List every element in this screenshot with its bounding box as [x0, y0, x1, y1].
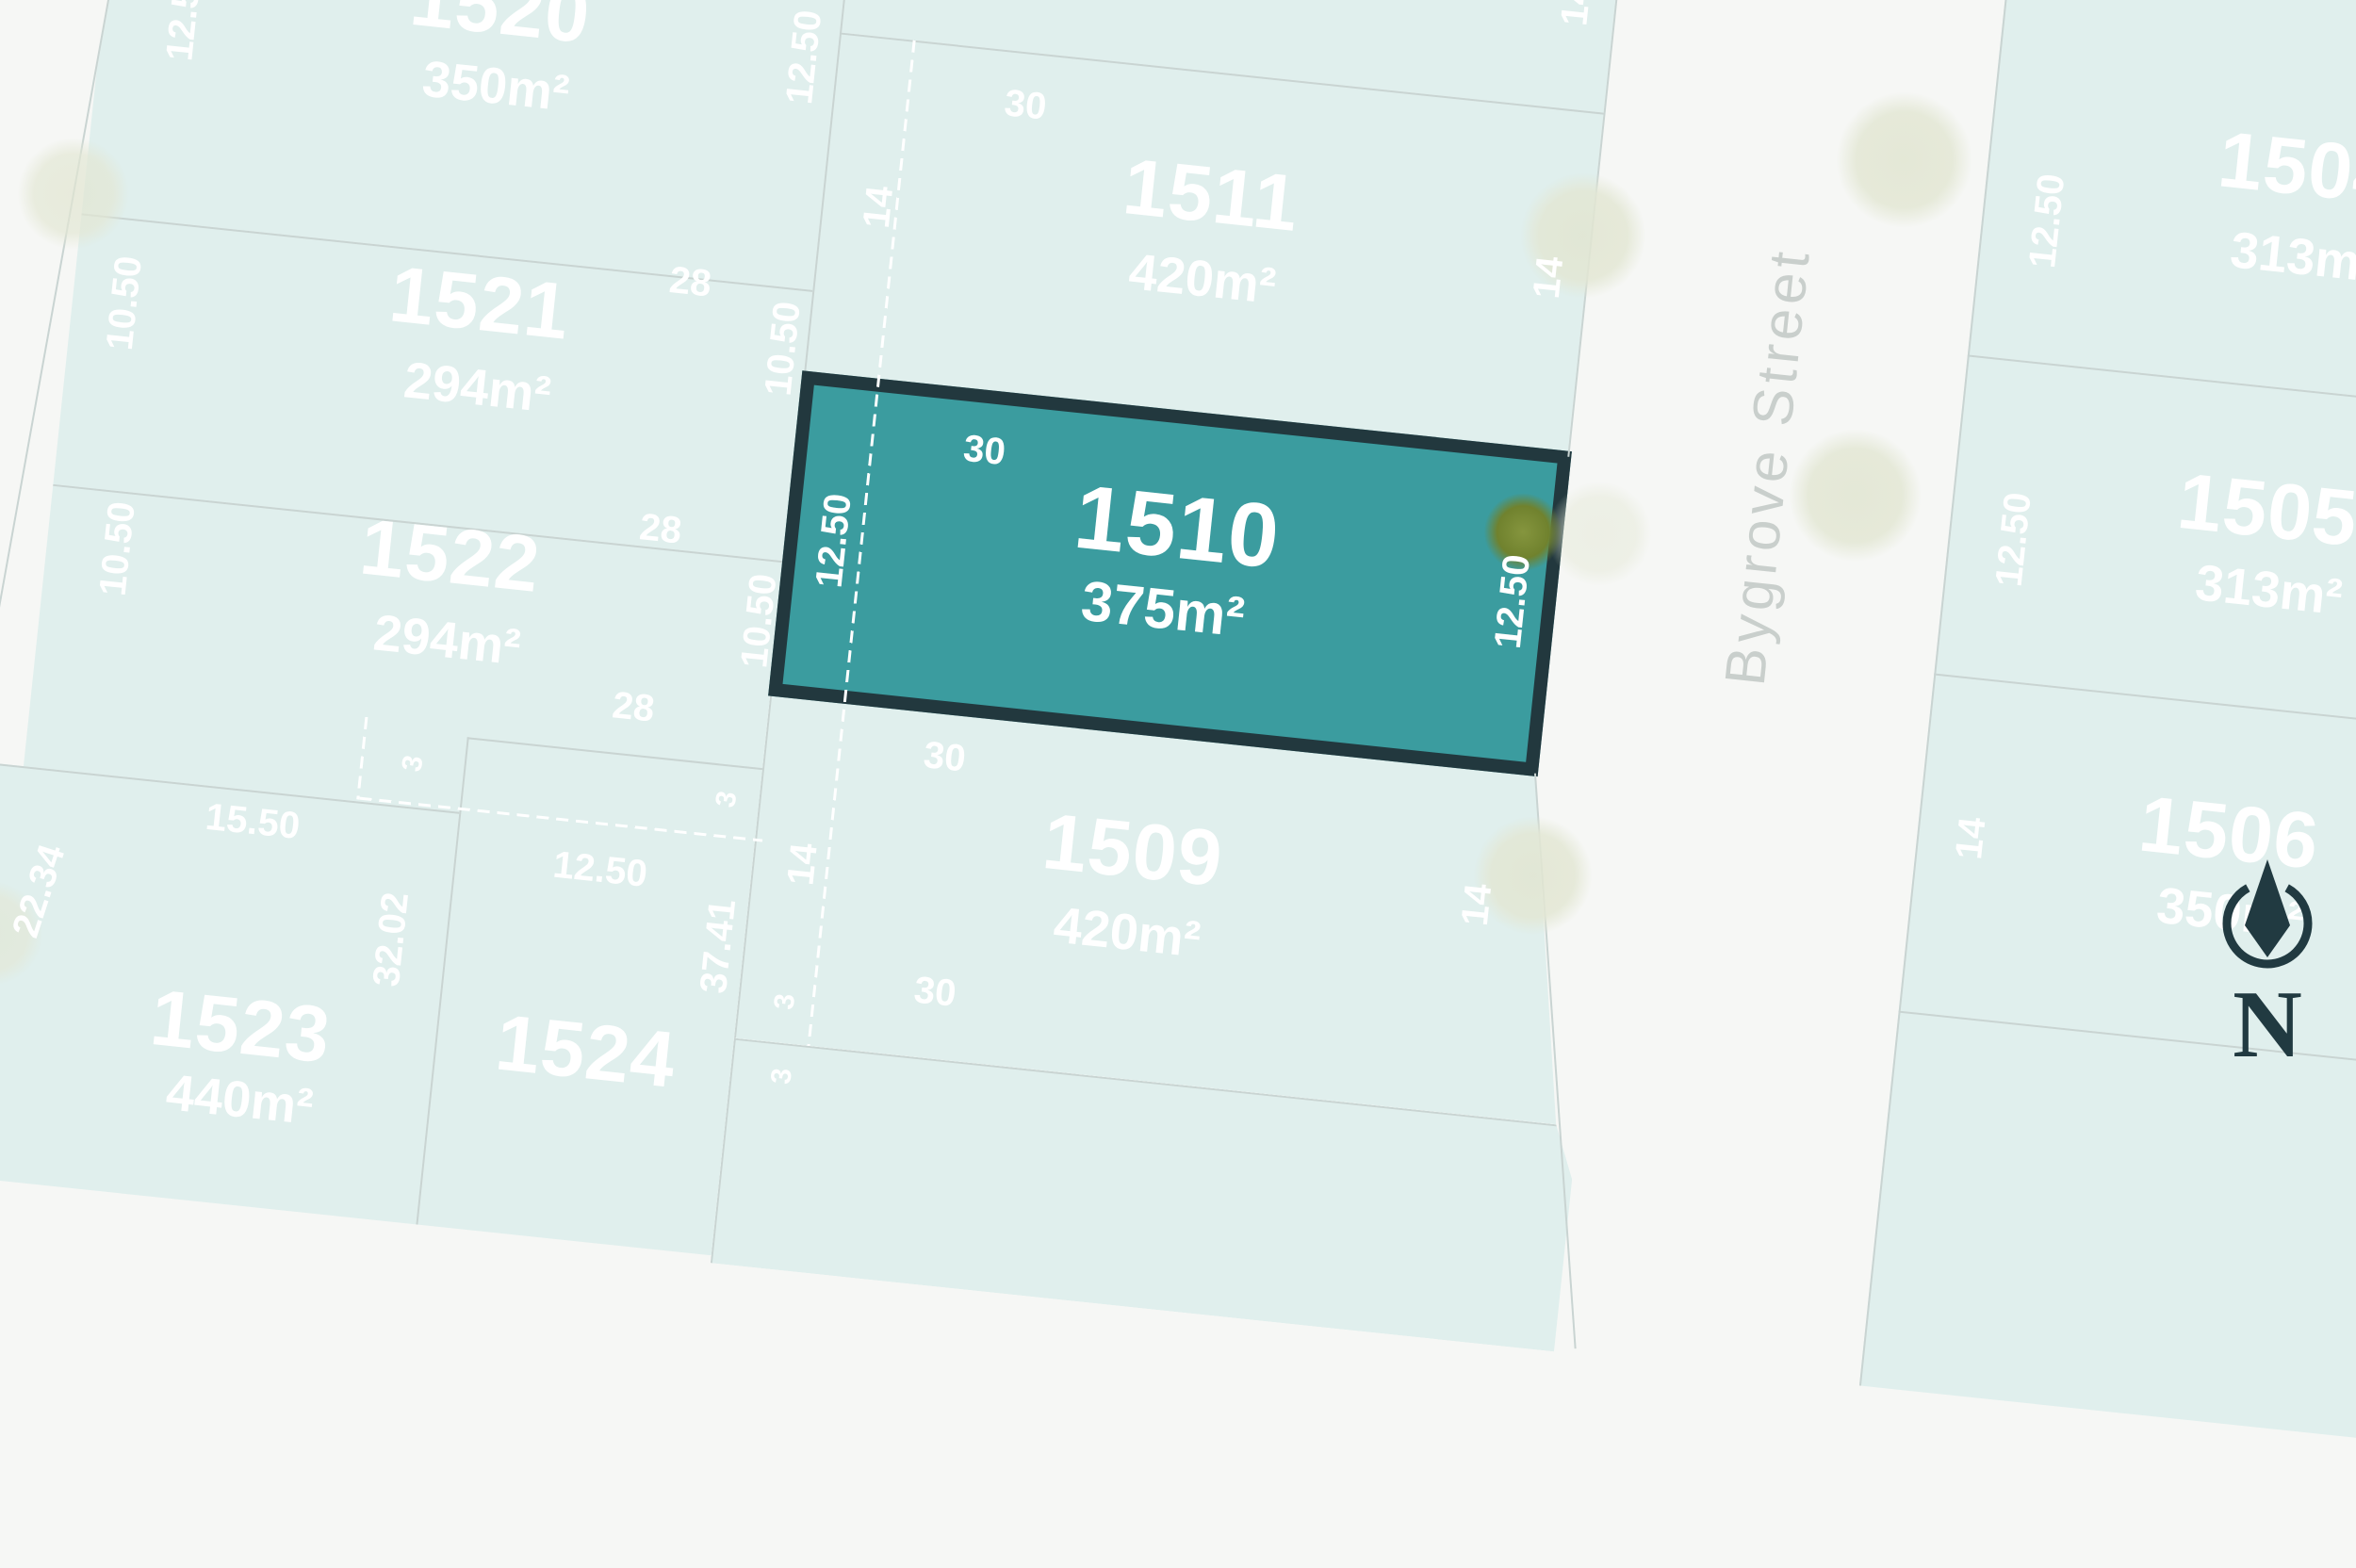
north-label: N: [2201, 977, 2333, 1073]
lot-1505-number: 1505: [2174, 461, 2356, 558]
compass-needle-icon: [2245, 859, 2290, 957]
dimension-label: 14: [1528, 254, 1569, 300]
north-indicator: N: [2201, 846, 2333, 1073]
setback-dimension-label: 3: [770, 992, 800, 1011]
dimension-label: 28: [611, 686, 656, 727]
lot-1504-number: 1504: [2215, 119, 2356, 216]
tree-icon: [1803, 59, 2004, 261]
dimension-label: 28: [667, 261, 712, 302]
dimension-label: 14: [781, 841, 823, 887]
tree-icon: [0, 110, 156, 276]
dimension-label: 10.50: [94, 499, 141, 597]
lot-1522-number: 1522: [357, 507, 545, 604]
dimension-label-1510-right: 12.50: [1489, 552, 1536, 650]
subdivision-plan: Bygrove Street 1520 350m² 1521 294m² 152…: [0, 0, 2356, 1232]
dimension-label: 10.50: [735, 572, 782, 670]
dimension-label: 30: [922, 736, 967, 777]
dimension-label: 12.50: [551, 846, 649, 893]
dimension-label: 12.50: [160, 0, 207, 62]
dimension-label-1510-left: 12.50: [810, 492, 858, 590]
lot-1523-number: 1523: [147, 977, 335, 1074]
dimension-label: 12.50: [780, 8, 827, 106]
dimension-label: 10.50: [760, 300, 807, 398]
dimension-label: 12.50: [2023, 172, 2070, 270]
dimension-label: 14: [1555, 0, 1596, 27]
dimension-label: 12.50: [1990, 491, 2037, 589]
lot-1521-number: 1521: [386, 253, 574, 351]
dimension-label: 37.41: [695, 897, 742, 995]
dimension-label: 14: [858, 185, 899, 230]
dimension-label: 14: [1456, 882, 1497, 927]
tree-icon: [1445, 788, 1621, 964]
lot-1511-number: 1511: [1120, 146, 1302, 243]
dimension-label: 30: [1003, 84, 1048, 125]
setback-dimension-label: 3: [767, 1067, 797, 1086]
dimension-label: 32.02: [368, 890, 415, 988]
dimension-label: 14: [1950, 815, 1991, 860]
lot-1510-number: 1510: [1071, 472, 1284, 583]
lot-1509-number: 1509: [1039, 801, 1227, 898]
lot-1524[interactable]: [416, 737, 762, 1255]
dimension-label: 10.50: [101, 254, 148, 352]
compass-icon: [2201, 846, 2333, 988]
dimension-label: 15.50: [204, 798, 302, 845]
dimension-label: 30: [912, 971, 957, 1012]
tree-icon: [1490, 142, 1677, 329]
dimension-label: 28: [638, 508, 683, 549]
dimension-label-1510-frontage: 30: [961, 430, 1006, 471]
lot-1524-number: 1524: [492, 1002, 679, 1099]
